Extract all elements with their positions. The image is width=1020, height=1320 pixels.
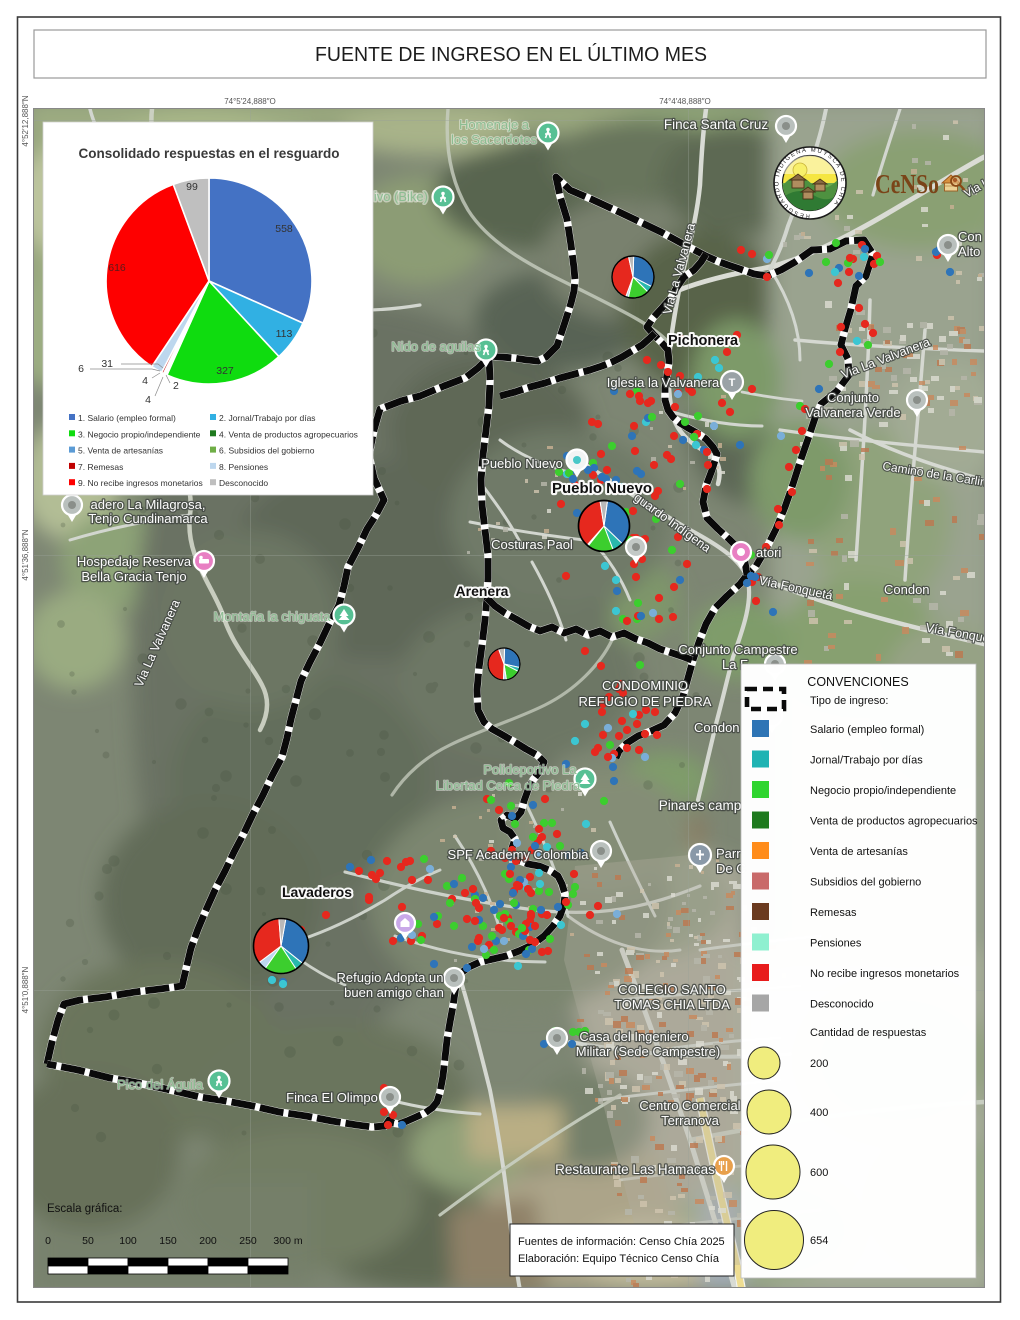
svg-text:Militar (Sede Campestre): Militar (Sede Campestre) <box>576 1044 721 1059</box>
svg-text:Tipo de ingreso:: Tipo de ingreso: <box>810 695 888 707</box>
svg-text:Conjunto: Conjunto <box>827 390 879 405</box>
svg-text:4: 4 <box>142 375 148 387</box>
svg-text:Finca El Olimpo: Finca El Olimpo <box>286 1090 378 1105</box>
svg-text:Elaboración: Equipo Técnico Ce: Elaboración: Equipo Técnico Censo Chía <box>518 1253 720 1265</box>
svg-text:Fuentes de información: Censo: Fuentes de información: Censo Chía 2025 <box>518 1236 725 1248</box>
svg-text:Jornal/Trabajo por días: Jornal/Trabajo por días <box>810 755 923 767</box>
svg-text:9. No recibe ingresos monetari: 9. No recibe ingresos monetarios <box>78 478 203 488</box>
svg-text:3. Negocio propio/independient: 3. Negocio propio/independiente <box>78 429 201 439</box>
svg-text:150: 150 <box>159 1235 177 1247</box>
svg-text:Escala gráfica:: Escala gráfica: <box>47 1203 122 1215</box>
svg-text:Valvanera Verde: Valvanera Verde <box>805 405 900 420</box>
svg-text:100: 100 <box>119 1235 137 1247</box>
svg-text:Finca Santa Cruz: Finca Santa Cruz <box>664 117 769 132</box>
svg-text:616: 616 <box>108 262 126 274</box>
svg-text:654: 654 <box>810 1235 828 1247</box>
svg-text:Pinares camp: Pinares camp <box>659 798 742 813</box>
svg-text:Conjunto Campestre: Conjunto Campestre <box>678 642 797 657</box>
svg-text:600: 600 <box>810 1167 828 1179</box>
svg-text:400: 400 <box>810 1107 828 1119</box>
svg-text:Pueblo Nuevo: Pueblo Nuevo <box>481 456 563 471</box>
svg-text:Cantidad de respuestas: Cantidad de respuestas <box>810 1027 927 1039</box>
svg-text:6. Subsidios del gobierno: 6. Subsidios del gobierno <box>219 446 315 456</box>
svg-text:Pensiones: Pensiones <box>810 938 862 950</box>
svg-text:COLEGIO SANTO: COLEGIO SANTO <box>618 982 725 997</box>
svg-text:99: 99 <box>186 181 198 193</box>
svg-text:Montaña la chiguata: Montaña la chiguata <box>213 609 331 624</box>
svg-text:los Sacerdotes: los Sacerdotes <box>451 132 537 147</box>
svg-text:7. Remesas: 7. Remesas <box>78 462 123 472</box>
svg-text:Negocio propio/independiente: Negocio propio/independiente <box>810 785 956 797</box>
svg-text:8. Pensiones: 8. Pensiones <box>219 462 268 472</box>
svg-text:CeNSo: CeNSo <box>875 169 939 199</box>
svg-text:CONDOMINIO: CONDOMINIO <box>602 678 688 693</box>
svg-text:Desconocido: Desconocido <box>219 478 268 488</box>
svg-text:Venta de artesanías: Venta de artesanías <box>810 846 908 858</box>
svg-text:4: 4 <box>145 394 151 406</box>
svg-text:Hospedaje Reserva: Hospedaje Reserva <box>77 554 192 569</box>
svg-text:200: 200 <box>199 1235 217 1247</box>
svg-text:6: 6 <box>78 363 84 375</box>
svg-text:Desconocido: Desconocido <box>810 999 874 1011</box>
svg-text:Parr: Parr <box>716 846 741 861</box>
svg-text:adero La Milagrosa,: adero La Milagrosa, <box>91 497 206 512</box>
svg-text:Terranova: Terranova <box>661 1113 720 1128</box>
svg-text:Iglesia la Valvanera: Iglesia la Valvanera <box>607 375 720 390</box>
svg-text:1. Salario (empleo formal): 1. Salario (empleo formal) <box>78 413 176 423</box>
svg-text:Salario (empleo formal): Salario (empleo formal) <box>810 724 924 736</box>
svg-text:0: 0 <box>45 1235 51 1247</box>
svg-text:327: 327 <box>216 365 234 377</box>
svg-text:4°51′0,888″N: 4°51′0,888″N <box>21 966 30 1013</box>
svg-text:113: 113 <box>276 328 293 340</box>
svg-text:2: 2 <box>173 380 179 392</box>
svg-text:REFUGIO DE PIEDRA: REFUGIO DE PIEDRA <box>579 694 712 709</box>
svg-text:4°52′12,888″N: 4°52′12,888″N <box>21 95 30 146</box>
svg-text:FUENTE DE INGRESO EN EL ÚLTIMO: FUENTE DE INGRESO EN EL ÚLTIMO MES <box>315 43 707 66</box>
svg-text:2. Jornal/Trabajo por días: 2. Jornal/Trabajo por días <box>219 413 316 423</box>
svg-text:ivo (Bike): ivo (Bike) <box>374 189 428 204</box>
svg-text:Pichonera: Pichonera <box>668 333 739 349</box>
svg-text:Centro Comercial: Centro Comercial <box>639 1098 740 1113</box>
svg-text:SPF Academy Colombia: SPF Academy Colombia <box>448 847 590 862</box>
svg-text:Homenaje a: Homenaje a <box>459 117 530 132</box>
svg-text:558: 558 <box>275 223 293 235</box>
svg-text:Costuras Paol: Costuras Paol <box>491 537 573 552</box>
svg-text:Lavaderos: Lavaderos <box>282 884 352 900</box>
svg-text:Condon: Condon <box>884 582 930 597</box>
svg-text:250: 250 <box>239 1235 257 1247</box>
svg-text:Con: Con <box>958 229 982 244</box>
svg-text:T: T <box>729 377 736 389</box>
svg-text:Refugio Adopta un: Refugio Adopta un <box>337 970 444 985</box>
svg-text:Pico del Águila: Pico del Águila <box>117 1077 204 1092</box>
svg-text:Arenera: Arenera <box>456 583 509 599</box>
svg-text:74°4′48,888″O: 74°4′48,888″O <box>659 97 711 106</box>
svg-text:50: 50 <box>82 1235 94 1247</box>
svg-text:Consolidado respuestas en el r: Consolidado respuestas en el resguardo <box>78 146 339 161</box>
svg-text:Venta de productos agropecuari: Venta de productos agropecuarios <box>810 816 978 828</box>
svg-text:Casa del Ingeniero: Casa del Ingeniero <box>579 1029 688 1044</box>
svg-text:4. Venta de productos agropecu: 4. Venta de productos agropecuarios <box>219 429 358 439</box>
svg-text:Polideportivo La: Polideportivo La <box>483 762 577 777</box>
svg-text:buen amigo chan: buen amigo chan <box>344 985 444 1000</box>
svg-text:Tenjo Cundinamarca: Tenjo Cundinamarca <box>88 511 208 526</box>
svg-text:Alto: Alto <box>958 244 980 259</box>
svg-text:200: 200 <box>810 1058 828 1070</box>
svg-text:300 m: 300 m <box>273 1235 302 1247</box>
svg-text:Remesas: Remesas <box>810 907 857 919</box>
svg-text:Nido de aguilas: Nido de aguilas <box>391 339 481 354</box>
svg-text:Bella Gracia Tenjo: Bella Gracia Tenjo <box>81 569 186 584</box>
svg-text:TOMAS CHIA LTDA: TOMAS CHIA LTDA <box>614 997 730 1012</box>
svg-text:No recibe ingresos monetarios: No recibe ingresos monetarios <box>810 968 960 980</box>
svg-text:5. Venta de artesanías: 5. Venta de artesanías <box>78 446 163 456</box>
svg-text:4°51′36,888″N: 4°51′36,888″N <box>21 529 30 580</box>
svg-text:Restaurante Las Hamacas: Restaurante Las Hamacas <box>555 1162 715 1177</box>
svg-text:atori: atori <box>756 545 781 560</box>
svg-text:74°5′24,888″O: 74°5′24,888″O <box>224 97 276 106</box>
svg-text:CONVENCIONES: CONVENCIONES <box>807 675 908 689</box>
svg-text:Condon: Condon <box>694 720 740 735</box>
svg-text:Subsidios del gobierno: Subsidios del gobierno <box>810 877 921 889</box>
svg-text:31: 31 <box>101 358 113 370</box>
svg-text:Libertad Cerca de Piedra: Libertad Cerca de Piedra <box>436 778 581 793</box>
